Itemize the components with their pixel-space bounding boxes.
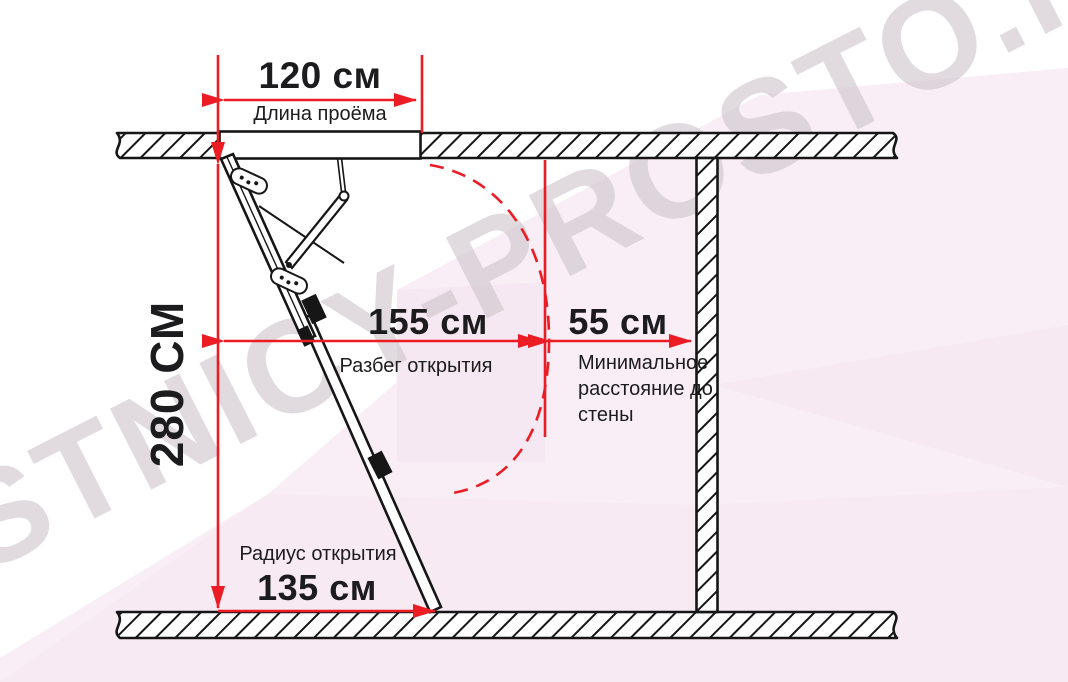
opening-run-label: Разбег открытия (340, 355, 493, 378)
wall-distance-label: Минимальное расстояние до стены (578, 350, 728, 428)
ceiling-opening-frame (220, 132, 421, 159)
opening-length-label: Длина проёма (253, 103, 386, 126)
arm-vertical-rod (338, 158, 346, 192)
opening-radius-label: Радиус открытия (239, 543, 396, 566)
floor-slab (117, 612, 897, 638)
arm-elbow-joint (340, 192, 349, 201)
opening-length-value: 120 см (259, 55, 382, 97)
wall-distance-value: 55 см (568, 301, 667, 343)
opening-run-value: 155 см (368, 301, 488, 343)
ceiling-height-value: 280 СМ (140, 301, 194, 467)
arm-lower-joint (286, 262, 292, 268)
opening-radius-value: 135 см (257, 567, 377, 609)
attic-ladder-dimensions-diagram: LESTNICY-PROSTO.RU (0, 0, 1068, 682)
